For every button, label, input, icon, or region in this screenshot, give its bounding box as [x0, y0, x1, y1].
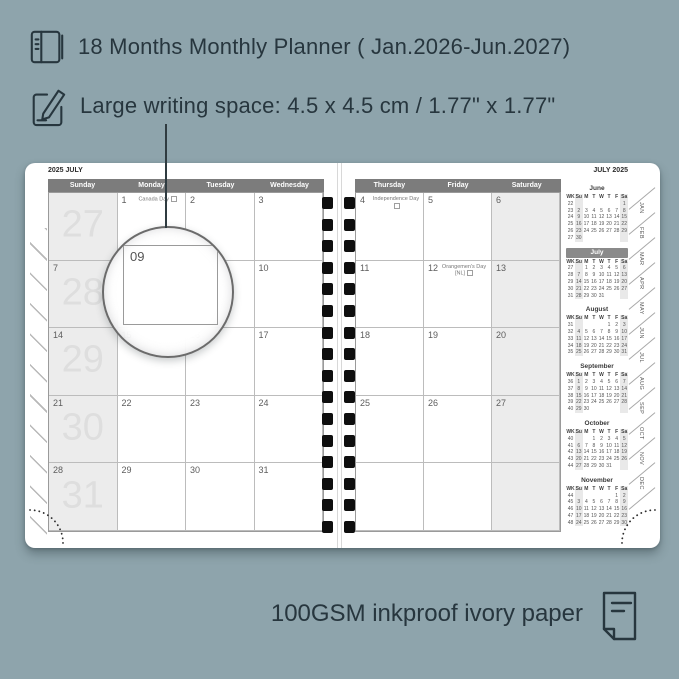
mini-grid-cell: 29 [575, 406, 583, 413]
mini-grid-cell [613, 406, 621, 413]
right-day-header-row: ThursdayFridaySaturday [355, 179, 561, 192]
calendar-cell: 3 [255, 193, 324, 261]
month-tab-label: AUG [638, 377, 644, 390]
mini-grid-header-cell: Su [575, 429, 583, 436]
spiral-hole [344, 478, 355, 490]
mini-grid-cell: 13 [613, 386, 621, 393]
mini-grid-cell: 25 [575, 349, 583, 356]
mini-grid-cell: 12 [598, 214, 606, 221]
spiral-hole [322, 219, 333, 231]
spiral-hole [344, 413, 355, 425]
mini-grid-cell [575, 265, 583, 272]
mini-grid-cell [620, 406, 628, 413]
calendar-cell: 26 [424, 396, 492, 464]
mini-grid-cell: 44 [566, 493, 575, 500]
mini-grid-cell: 11 [583, 506, 591, 513]
mini-grid-header-cell: F [613, 194, 621, 201]
mini-grid-cell [583, 201, 591, 208]
mini-grid-cell [605, 201, 613, 208]
day-number: 25 [360, 398, 370, 408]
mini-grid-cell: 25 [605, 286, 613, 293]
mini-grid-cell: 24 [566, 214, 575, 221]
feature-item-months: 18 Months Monthly Planner ( Jan.2026-Jun… [28, 28, 570, 66]
day-header-label: Wednesday [255, 179, 324, 192]
month-tab-label: MAR [638, 252, 644, 265]
day-number: 5 [428, 195, 433, 205]
calendar-cell: 18 [356, 328, 424, 396]
calendar-cell: 3021 [49, 396, 118, 464]
holiday-flag-icon [394, 203, 400, 209]
mini-grid-cell: 17 [598, 279, 606, 286]
mini-grid-cell: 30 [590, 293, 598, 300]
mini-grid-cell: 27 [613, 399, 621, 406]
mini-grid-cell [583, 322, 591, 329]
spiral-hole [344, 262, 355, 274]
mini-grid-cell: 28 [605, 520, 613, 527]
mini-calendar: JulyWKSuMTWTFSa2712345628789101112132914… [566, 248, 628, 300]
left-page-corner-label: 2025 JULY [48, 167, 83, 174]
mini-grid-cell: 23 [590, 286, 598, 293]
mini-month-title: August [566, 305, 628, 314]
day-number: 30 [190, 465, 200, 475]
mini-grid-cell: 20 [575, 456, 583, 463]
mini-grid-cell: 31 [620, 349, 628, 356]
mini-grid-header-cell: F [613, 429, 621, 436]
spiral-hole [322, 499, 333, 511]
calendar-cell: 6 [492, 193, 560, 261]
calendar-cell: 10 [255, 261, 324, 329]
magnified-cell-outline: 09 [123, 245, 218, 325]
mini-grid-cell: 15 [590, 449, 598, 456]
mini-grid-cell [583, 436, 591, 443]
spiral-hole [322, 348, 333, 360]
mini-grid-cell: 29 [566, 279, 575, 286]
mini-grid-cell: 28 [598, 349, 606, 356]
spiral-hole [344, 197, 355, 209]
mini-grid-cell: 22 [590, 456, 598, 463]
mini-grid-cell: 15 [583, 279, 591, 286]
mini-grid-cell: 32 [566, 329, 575, 336]
mini-grid: WKSuMTWTFSa36123456737891011121314381516… [566, 372, 628, 413]
mini-calendar: SeptemberWKSuMTWTFSa36123456737891011121… [566, 362, 628, 413]
mini-month-title: October [566, 419, 628, 428]
mini-grid-cell: 21 [598, 343, 606, 350]
mini-grid-cell: 22 [575, 399, 583, 406]
mini-grid-cell: 8 [590, 443, 598, 450]
mini-grid-header-cell: Sa [620, 429, 628, 436]
mini-grid-cell: 1 [620, 201, 628, 208]
day-number: 18 [360, 330, 370, 340]
mini-grid-cell: 3 [598, 265, 606, 272]
mini-grid-header-cell: M [583, 315, 591, 322]
mini-grid-cell: 9 [590, 272, 598, 279]
mini-grid-cell [598, 322, 606, 329]
pencil-icon [28, 84, 68, 128]
mini-grid-cell: 10 [590, 386, 598, 393]
mini-grid-cell: 19 [605, 393, 613, 400]
mini-grid-cell: 27 [598, 520, 606, 527]
mini-grid-cell: 12 [620, 443, 628, 450]
mini-grid-header-cell: M [583, 194, 591, 201]
mini-grid-cell: 5 [583, 329, 591, 336]
pointer-line [165, 124, 167, 228]
mini-grid-cell: 21 [613, 221, 621, 228]
mini-grid-cell: 17 [590, 393, 598, 400]
mini-grid-header-cell: T [590, 315, 598, 322]
mini-month-title: June [566, 184, 628, 193]
spiral-hole [344, 348, 355, 360]
mini-grid-cell: 21 [620, 393, 628, 400]
day-number: 19 [428, 330, 438, 340]
mini-grid: WKSuMTWTFSa40123454167891011124213141516… [566, 429, 628, 470]
mini-grid-cell [613, 235, 621, 242]
mini-month-title: November [566, 476, 628, 485]
mini-grid-cell: 5 [598, 208, 606, 215]
mini-grid-cell: 25 [613, 456, 621, 463]
mini-grid-cell: 6 [620, 265, 628, 272]
spiral-hole [322, 435, 333, 447]
mini-grid-cell: 17 [605, 449, 613, 456]
stacked-tabs-hatch-strip [30, 228, 47, 546]
mini-grid-cell: 23 [583, 399, 591, 406]
mini-grid-cell: 16 [583, 393, 591, 400]
mini-grid-cell: 7 [583, 443, 591, 450]
day-number: 24 [259, 398, 269, 408]
spiral-hole [344, 283, 355, 295]
mini-grid-cell: 14 [613, 214, 621, 221]
spiral-hole [344, 391, 355, 403]
spiral-hole [344, 370, 355, 382]
mini-grid-cell: 19 [598, 221, 606, 228]
month-tab: APR [629, 273, 655, 298]
month-tab-label: APR [638, 277, 644, 290]
mini-grid-cell: 22 [583, 286, 591, 293]
holiday-label: Independence Day [370, 196, 422, 209]
feature-text-writing-space: Large writing space: 4.5 x 4.5 cm / 1.77… [80, 93, 555, 119]
mini-grid-cell: 3 [583, 208, 591, 215]
mini-calendar: JuneWKSuMTWTFSa2212323456782491011121314… [566, 184, 628, 242]
mini-grid-cell: 30 [598, 463, 606, 470]
mini-grid-header-cell: W [598, 259, 606, 266]
week-number-watermark: 28 [62, 272, 104, 315]
right-page-corner-label: JULY 2025 [505, 167, 628, 174]
mini-grid-cell [598, 235, 606, 242]
mini-grid-cell: 3 [590, 379, 598, 386]
mini-grid-cell [620, 463, 628, 470]
mini-grid-cell: 10 [620, 329, 628, 336]
mini-grid-cell: 6 [598, 499, 606, 506]
mini-grid-cell: 20 [590, 343, 598, 350]
mini-grid-cell: 23 [566, 208, 575, 215]
mini-grid-cell: 24 [620, 343, 628, 350]
mini-grid-cell: 5 [620, 436, 628, 443]
day-number: 1 [122, 195, 127, 205]
day-header-label: Saturday [492, 179, 561, 192]
mini-grid-cell: 40 [566, 406, 575, 413]
page-edge-right [341, 163, 342, 548]
mini-grid-cell: 1 [605, 322, 613, 329]
spiral-hole [322, 413, 333, 425]
mini-grid-cell: 26 [583, 349, 591, 356]
mini-grid-header-cell: Su [575, 259, 583, 266]
calendar-cell: 31 [255, 463, 324, 531]
mini-grid-header-cell: Su [575, 486, 583, 493]
spiral-hole [344, 240, 355, 252]
mini-grid-cell: 24 [605, 456, 613, 463]
day-number: 26 [428, 398, 438, 408]
day-number: 13 [496, 263, 506, 273]
mini-grid-cell: 23 [575, 228, 583, 235]
mini-grid-cell: 18 [583, 513, 591, 520]
mini-grid: WKSuMTWTFSa31123324567891033111213141516… [566, 315, 628, 356]
mini-grid: WKSuMTWTFSa22123234567824910111213141525… [566, 194, 628, 242]
mini-grid-cell: 5 [613, 265, 621, 272]
spiral-hole [344, 456, 355, 468]
mini-grid-cell: 6 [613, 379, 621, 386]
mini-grid-cell [598, 406, 606, 413]
calendar-cell: 24 [255, 396, 324, 464]
mini-grid-cell: 21 [575, 286, 583, 293]
mini-grid-cell: 7 [598, 329, 606, 336]
mini-grid-cell: 41 [566, 443, 575, 450]
mini-grid-cell: 2 [598, 436, 606, 443]
calendar-cell: 27 [492, 396, 560, 464]
mini-grid-cell: 12 [583, 336, 591, 343]
mini-grid-cell: 14 [620, 386, 628, 393]
mini-grid-cell: 26 [605, 399, 613, 406]
mini-grid-cell: 26 [590, 520, 598, 527]
day-number: 28 [53, 465, 63, 475]
mini-grid-cell: 29 [620, 228, 628, 235]
mini-grid-cell: 30 [575, 235, 583, 242]
mini-calendar: OctoberWKSuMTWTFSa4012345416789101112421… [566, 419, 628, 470]
spiral-hole [344, 435, 355, 447]
mini-grid-cell: 3 [620, 322, 628, 329]
mini-grid-cell: 2 [575, 208, 583, 215]
mini-grid-cell [583, 235, 591, 242]
mini-grid-cell: 24 [590, 399, 598, 406]
mini-grid-cell: 7 [613, 208, 621, 215]
planner-photo: 2025 JULY SundayMondayTuesdayWednesday 2… [25, 163, 660, 548]
mini-grid-cell: 37 [566, 386, 575, 393]
mini-grid-header-cell: T [605, 429, 613, 436]
day-number: 11 [360, 263, 369, 273]
mini-grid-cell [620, 293, 628, 300]
mini-grid-cell: 13 [605, 214, 613, 221]
mini-grid-cell: 8 [583, 272, 591, 279]
day-number: 6 [496, 195, 501, 205]
spiral-hole [322, 327, 333, 339]
mini-calendar: AugustWKSuMTWTFSa31123324567891033111213… [566, 305, 628, 356]
spiral-hole [322, 391, 333, 403]
mini-grid-cell: 25 [566, 221, 575, 228]
day-number: 4 [360, 195, 365, 205]
mini-grid-header-cell: F [613, 372, 621, 379]
mini-grid-cell: 18 [605, 279, 613, 286]
mini-grid-cell: 23 [598, 456, 606, 463]
mini-grid-cell: 3 [605, 436, 613, 443]
mini-grid-cell: 13 [590, 336, 598, 343]
mini-grid-cell: 40 [566, 436, 575, 443]
mini-grid-cell: 29 [583, 293, 591, 300]
mini-grid-cell: 33 [566, 336, 575, 343]
mini-grid-cell [605, 293, 613, 300]
month-tab-label: JUN [638, 327, 644, 339]
week-number-watermark: 30 [62, 407, 104, 450]
mini-grid-cell: 8 [605, 329, 613, 336]
mini-grid-cell: 28 [620, 399, 628, 406]
calendar-cell: 30 [186, 463, 255, 531]
day-header-label: Monday [117, 179, 186, 192]
mini-grid-cell: 14 [575, 279, 583, 286]
mini-grid-cell: 4 [575, 329, 583, 336]
mini-grid: WKSuMTWTFSa27123456287891011121329141516… [566, 259, 628, 300]
mini-grid-cell: 29 [590, 463, 598, 470]
mini-grid-cell: 26 [566, 228, 575, 235]
spiral-hole [322, 197, 333, 209]
notebook-icon [28, 28, 66, 66]
mini-grid-cell: 27 [590, 349, 598, 356]
mini-grid-cell: 21 [583, 456, 591, 463]
mini-grid-cell: 2 [613, 322, 621, 329]
mini-grid-cell: 25 [590, 228, 598, 235]
mini-grid-header-cell: Sa [620, 486, 628, 493]
month-tab: DEC [629, 473, 655, 498]
mini-grid-cell: 26 [598, 228, 606, 235]
calendar-cell: 25 [356, 396, 424, 464]
mini-grid-cell: 20 [598, 513, 606, 520]
mini-grid-header-cell: T [605, 194, 613, 201]
mini-grid-cell: 9 [598, 443, 606, 450]
mini-grid-cell: 42 [566, 449, 575, 456]
day-number: 29 [122, 465, 132, 475]
month-tab: JUL [629, 348, 655, 373]
mini-grid-cell: 19 [583, 343, 591, 350]
mini-grid-header-cell: M [583, 486, 591, 493]
month-tab: MAR [629, 248, 655, 273]
mini-grid-cell: 4 [590, 208, 598, 215]
mini-grid-cell: 20 [605, 221, 613, 228]
mini-grid-cell: 27 [620, 286, 628, 293]
mini-grid-cell [605, 406, 613, 413]
calendar-cell: 17 [255, 328, 324, 396]
holiday-label: Canada Day [132, 196, 185, 203]
mini-grid-cell: 7 [605, 499, 613, 506]
month-tab-label: JAN [638, 202, 644, 214]
calendar-cell: 19 [424, 328, 492, 396]
mini-grid-cell: 27 [575, 463, 583, 470]
mini-grid-header-cell: T [590, 372, 598, 379]
mini-grid-cell: 28 [575, 293, 583, 300]
mini-grid-cell: 11 [598, 386, 606, 393]
mini-grid-cell: 11 [590, 214, 598, 221]
mini-grid-cell: 14 [605, 506, 613, 513]
mini-grid-cell: 19 [613, 279, 621, 286]
mini-grid-cell: 10 [583, 214, 591, 221]
mini-grid-cell: 16 [575, 221, 583, 228]
mini-grid-cell: 18 [598, 393, 606, 400]
calendar-cell [492, 463, 560, 531]
mini-grid-cell: 15 [575, 393, 583, 400]
mini-grid-cell: 9 [575, 214, 583, 221]
mini-grid-cell: 7 [620, 379, 628, 386]
mini-grid-header-cell: F [613, 259, 621, 266]
mini-grid-cell: 22 [566, 201, 575, 208]
mini-grid-cell: 12 [590, 506, 598, 513]
mini-grid-header-cell: T [590, 194, 598, 201]
mini-grid-cell: 2 [620, 493, 628, 500]
holiday-flag-icon [171, 196, 177, 202]
mini-grid-header-cell: T [605, 372, 613, 379]
mini-grid-header-cell: Sa [620, 194, 628, 201]
mini-grid-cell: 7 [575, 272, 583, 279]
mini-grid-header-cell: W [598, 315, 606, 322]
calendar-cell: 5 [424, 193, 492, 261]
day-number: 3 [259, 195, 264, 205]
mini-grid-cell: 31 [566, 322, 575, 329]
calendar-cell [424, 463, 492, 531]
mini-grid-cell: 30 [613, 349, 621, 356]
calendar-cell: 12Orangemen's Day[NL] [424, 261, 492, 329]
mini-grid-cell: 3 [575, 499, 583, 506]
mini-grid-cell [575, 201, 583, 208]
mini-grid-cell [590, 406, 598, 413]
mini-grid-cell: 19 [620, 449, 628, 456]
mini-grid-cell: 17 [583, 221, 591, 228]
day-number: 22 [122, 398, 132, 408]
mini-grid-header-cell: T [605, 315, 613, 322]
day-number: 10 [259, 263, 269, 273]
month-tab-label: NOV [638, 452, 644, 465]
mini-grid-cell [583, 493, 591, 500]
mini-grid-cell: 19 [590, 513, 598, 520]
holiday-label: Orangemen's Day[NL] [438, 264, 490, 277]
mini-grid-cell: 31 [605, 463, 613, 470]
mini-grid-cell: 36 [566, 379, 575, 386]
day-header-label: Tuesday [186, 179, 255, 192]
mini-grid-cell: 1 [583, 265, 591, 272]
mini-grid-cell: 29 [605, 349, 613, 356]
page-edge-left [337, 163, 338, 548]
spiral-hole [322, 456, 333, 468]
mini-grid-cell: 47 [566, 513, 575, 520]
mini-grid-cell: 25 [583, 520, 591, 527]
mini-grid-header-cell: F [613, 486, 621, 493]
mini-grid-cell: 5 [605, 379, 613, 386]
mini-month-title: September [566, 362, 628, 371]
mini-grid-cell: 23 [613, 343, 621, 350]
day-header-label: Thursday [355, 179, 424, 192]
mini-grid-header-cell: Sa [620, 315, 628, 322]
mini-grid-header-cell: W [598, 372, 606, 379]
month-tab: MAY [629, 298, 655, 323]
mini-grid-cell [575, 493, 583, 500]
mini-grid-cell [575, 436, 583, 443]
mini-grid-cell: 30 [583, 406, 591, 413]
mini-grid-cell: 31 [566, 293, 575, 300]
mini-grid-cell: 28 [613, 228, 621, 235]
mini-grid-header-cell: Su [575, 372, 583, 379]
mini-grid-header-cell: WK [566, 429, 575, 436]
mini-grid-cell: 1 [575, 379, 583, 386]
mini-grid-header-cell: M [583, 429, 591, 436]
spiral-hole [322, 305, 333, 317]
mini-grid-header-cell: WK [566, 486, 575, 493]
mini-grid-cell: 14 [583, 449, 591, 456]
feature-item-writing-space: Large writing space: 4.5 x 4.5 cm / 1.77… [28, 84, 555, 128]
month-tab: SEP [629, 398, 655, 423]
week-number-watermark: 31 [62, 474, 104, 517]
